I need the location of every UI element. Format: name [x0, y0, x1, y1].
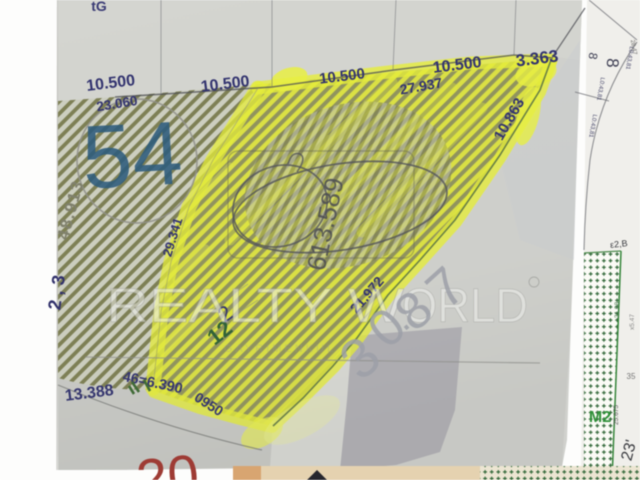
svg-text:31.98: 31.98: [614, 301, 621, 318]
svg-text:M2: M2: [589, 409, 611, 426]
svg-text:x5.47: x5.47: [629, 314, 636, 330]
svg-text:ε2,B: ε2,B: [610, 238, 628, 250]
svg-text:GAYRIMENKUL: GAYRIMENKUL: [224, 343, 336, 355]
svg-text:8: 8: [603, 58, 622, 68]
svg-text:35: 35: [627, 372, 636, 381]
svg-text:REALTY W: REALTY W: [106, 280, 405, 333]
svg-text:20: 20: [133, 442, 202, 480]
svg-text:25.675: 25.675: [613, 405, 620, 425]
